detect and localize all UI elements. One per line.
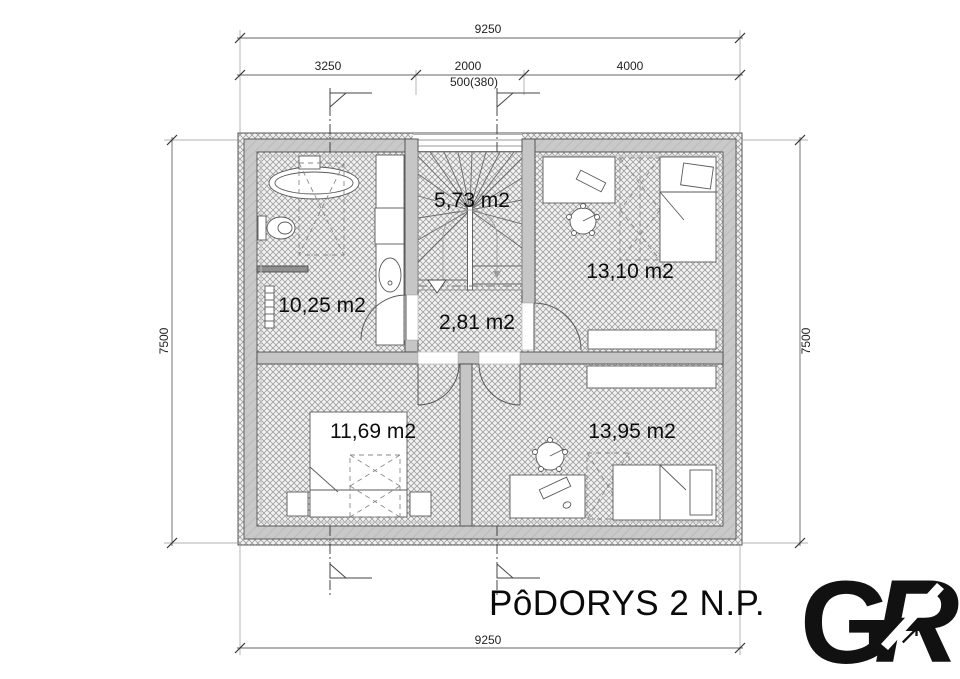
room-area-label-staircase: 5,73 m2 [434,189,510,212]
sideboard-icon [588,330,716,349]
dim-seg-left: 3250 [315,59,342,73]
nightstand-icon [287,492,308,516]
nightstand-icon [410,492,431,516]
stair-window [413,133,522,152]
logo-letter-g: G [800,557,892,679]
gr-logo: R G ↗ [800,556,959,679]
sideboard-icon [587,366,716,388]
dim-right-total: 7500 [799,327,813,354]
bathroom-counter [376,155,404,345]
dim-top-total: 9250 [475,22,502,36]
dim-seg-mid: 2000 [455,59,482,73]
logo-arrow-icon: ↗ [898,619,921,650]
room-area-label-bathroom: 10,25 m2 [278,294,366,317]
room-area-label-hallway: 2,81 m2 [439,311,515,334]
toilet-tank-icon [258,216,266,240]
pillow-icon [681,163,714,189]
floor-plan-canvas: 5,73 m2 10,25 m2 13,10 m2 2,81 m2 11,69 … [0,0,960,679]
bed-icon [613,465,716,520]
washbasin-icon [379,258,401,292]
dim-seg-mid-sub: 500(380) [450,75,498,89]
pillow-icon [690,470,712,515]
dim-seg-right: 4000 [617,59,644,73]
floor-plan-page: 5,73 m2 10,25 m2 13,10 m2 2,81 m2 11,69 … [0,0,960,679]
faucet-icon [299,156,320,169]
washer-icon [375,208,404,244]
room-area-label-bedroom-top-right: 13,10 m2 [586,260,674,283]
bed-icon [660,157,716,262]
drawing-title: PôDORYS 2 N.P. [489,584,765,623]
room-area-label-bedroom-bottom-right: 13,95 m2 [588,420,676,443]
dim-left-total: 7500 [157,327,171,354]
radiator-icon [265,286,274,328]
dim-bottom-total: 9250 [475,633,502,647]
room-area-label-bedroom-bottom-left: 11,69 m2 [330,420,416,443]
